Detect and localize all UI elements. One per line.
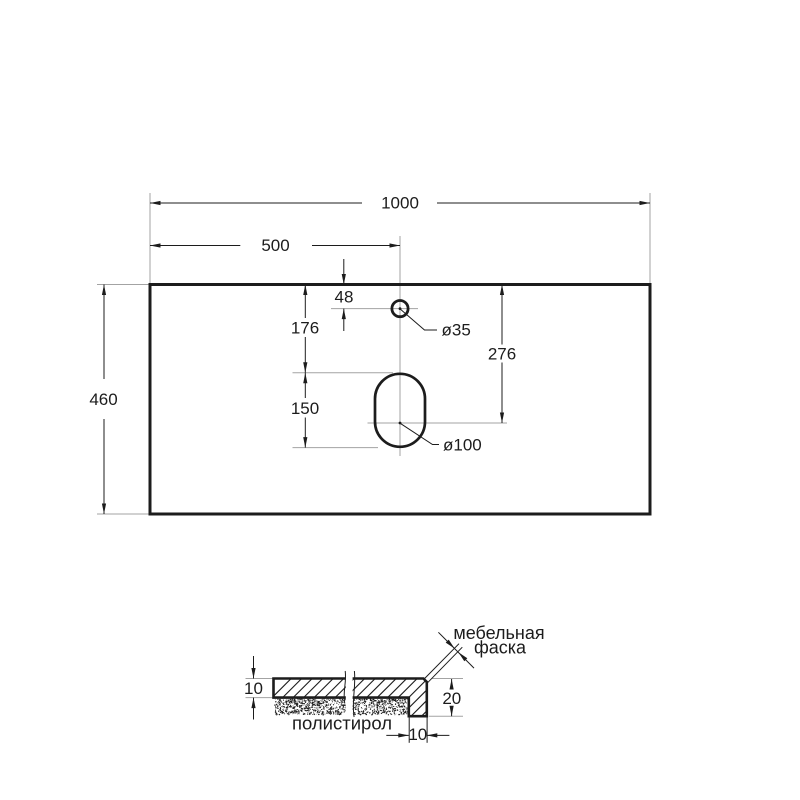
svg-text:фаска: фаска	[474, 638, 527, 658]
svg-text:48: 48	[335, 288, 354, 307]
svg-text:176: 176	[291, 319, 319, 338]
svg-text:460: 460	[89, 390, 117, 409]
svg-text:150: 150	[291, 399, 319, 418]
svg-text:10: 10	[244, 679, 263, 698]
svg-text:полистирол: полистирол	[292, 713, 392, 734]
svg-text:20: 20	[442, 689, 461, 708]
svg-text:276: 276	[488, 345, 516, 364]
svg-text:500: 500	[261, 236, 289, 255]
svg-text:10: 10	[408, 725, 427, 744]
svg-text:1000: 1000	[381, 194, 419, 213]
svg-text:ø100: ø100	[443, 436, 482, 455]
svg-text:ø35: ø35	[442, 321, 471, 340]
